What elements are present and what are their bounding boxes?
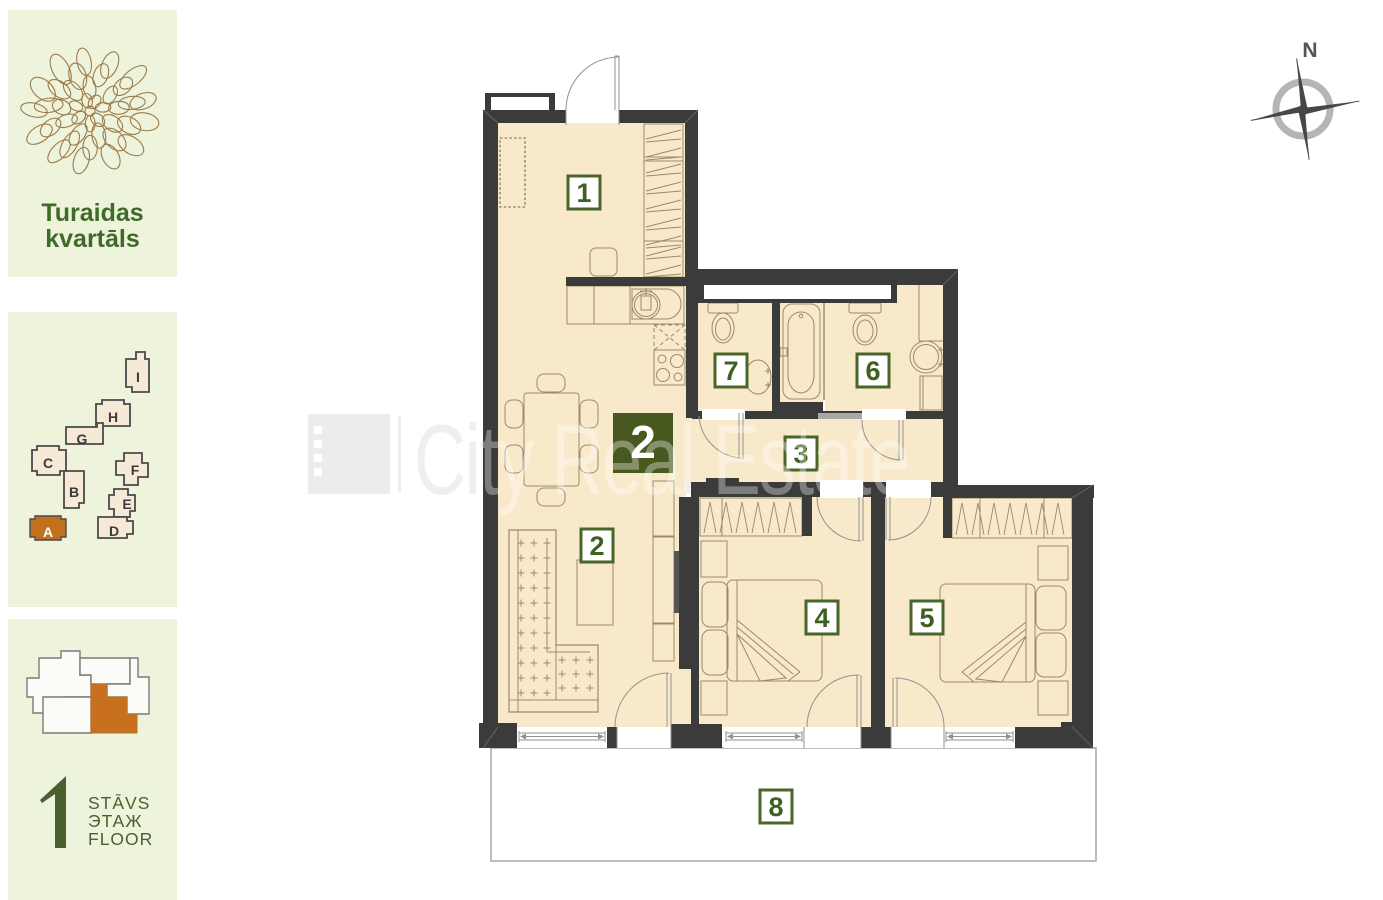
svg-text:1: 1 bbox=[576, 178, 591, 208]
svg-text:2: 2 bbox=[589, 531, 604, 561]
svg-text:8: 8 bbox=[768, 792, 783, 822]
svg-text:5: 5 bbox=[919, 603, 934, 633]
svg-text:7: 7 bbox=[723, 356, 738, 386]
svg-text:4: 4 bbox=[814, 603, 829, 633]
svg-text:N: N bbox=[1302, 39, 1317, 62]
svg-text:6: 6 bbox=[865, 356, 880, 386]
